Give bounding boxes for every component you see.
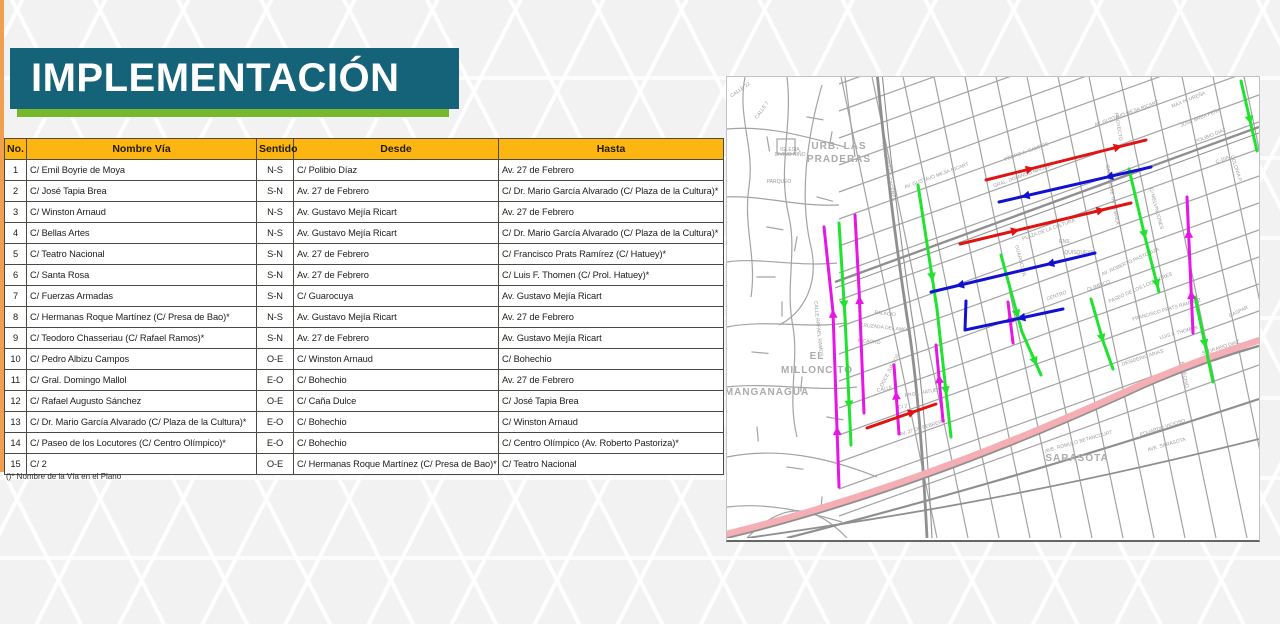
street-label: CALLE RAFAEL RAMOS [812,301,824,358]
table-cell: S-N [257,181,294,202]
route-arrow-icon [941,386,951,395]
street-label: AV. 27 DE FEBRERO [899,418,947,438]
table-cell: Av. 27 de Febrero [294,244,499,265]
table-cell: Av. Gustavo Mejía Ricart [294,307,499,328]
table-cell: Av. Gustavo Mejía Ricart [499,286,724,307]
table-row: 1C/ Emil Boyrie de MoyaN-SC/ Polibio Día… [5,160,724,181]
table-cell: Av. Gustavo Mejía Ricart [294,202,499,223]
route-line-rafael-ramos-magenta [824,227,839,487]
table-cell: E-O [257,433,294,454]
street-label: CALLE 7 [754,100,771,120]
table-cell: C/ Santa Rosa [27,265,257,286]
street-label: C/ 2 [898,403,908,411]
table-cell: N-S [257,223,294,244]
table-cell: 10 [5,349,27,370]
street-label: OLIMPICO [1086,279,1111,293]
table-cell: S-N [257,244,294,265]
route-line-santa-rosa-magenta [1187,197,1193,333]
street-label: PALACIO [874,310,896,318]
area-label: MANGANAGUA [727,387,809,398]
map-svg: CALLE 22CALLE 7IGLESIADIVINO NIÑOPARQUEO… [727,77,1259,538]
table-cell: Av. 27 de Febrero [499,307,724,328]
street-label: POLIBIO DIAZ [1194,127,1227,145]
route-arrow-icon [840,300,849,309]
table-cell: 4 [5,223,27,244]
table-cell: C/ Hermanas Roque Martínez (C/ Presa de … [27,307,257,328]
table-row: 12C/ Rafael Augusto SánchezO-EC/ Caña Du… [5,391,724,412]
table-row: 10C/ Pedro Albizu CamposO-EC/ Winston Ar… [5,349,724,370]
area-label: MILLONCITO [781,365,853,376]
street-label: PARQUEO [767,179,792,185]
table-header: No.Nombre VíaSentidoDesdeHasta [5,139,724,160]
table-cell: C/ Teatro Nacional [499,454,724,475]
route-arrow-icon [833,426,842,435]
area-label: SARASOTA [1045,453,1108,464]
table-row: 6C/ Santa RosaS-NAv. 27 de FebreroC/ Lui… [5,265,724,286]
route-line-tapia-brea-green [1129,169,1159,292]
table-cell: C/ Dr. Mario García Alvarado (C/ Plaza d… [27,412,257,433]
table-cell: C/ Rafael Augusto Sánchez [27,391,257,412]
table-cell: 7 [5,286,27,307]
route-arrow-icon [1187,290,1196,299]
route-arrow-icon [845,400,854,409]
street-label: CRUZADA DEL AMOR [859,322,911,333]
route-arrow-icon [891,391,900,400]
table-cell: C/ Caña Dulce [294,391,499,412]
page-title: IMPLEMENTACIÓN [31,56,399,101]
title-band: IMPLEMENTACIÓN [10,48,459,109]
street-label: DIVINO NIÑO [774,151,805,158]
street-label: ENS. [1059,239,1071,245]
street-label: GASPAR [1228,305,1249,320]
table-cell: O-E [257,349,294,370]
table-cell: C/ Dr. Mario García Alvarado (C/ Plaza d… [499,181,724,202]
table-header-cell: Nombre Vía [27,139,257,160]
route-line-right-green [1091,299,1113,369]
table-cell: C/ Winston Arnaud [27,202,257,223]
table-row: 2C/ José Tapia BreaS-NAv. 27 de FebreroC… [5,181,724,202]
table-cell: 6 [5,265,27,286]
table-footnote: ()* Nombre de la Vía en el Plano [6,472,121,481]
table-cell: C/ Winston Arnaud [499,412,724,433]
table-header-cell: Desde [294,139,499,160]
table-cell: C/ Gral. Domingo Mallol [27,370,257,391]
table-cell: C/ Teatro Nacional [27,244,257,265]
table-cell: Av. 27 de Febrero [294,265,499,286]
table-cell: C/ Bohechio [499,349,724,370]
table-cell: 9 [5,328,27,349]
route-arrow-icon [855,295,864,304]
street-label: PROL. HATUEY [904,387,941,399]
table-row: 8C/ Hermanas Roque Martínez (C/ Presa de… [5,307,724,328]
route-line-bellas-artes-green [918,185,951,437]
table-cell: Av. Gustavo Mejía Ricart [499,328,724,349]
table-cell: C/ Hermanas Roque Martínez (C/ Presa de … [294,454,499,475]
table-header-cell: Sentido [257,139,294,160]
table-row: 4C/ Bellas ArtesN-SAv. Gustavo Mejía Ric… [5,223,724,244]
slide: { "slide": { "title": "IMPLEMENTACIÓN", … [0,0,1280,624]
table-cell: C/ Bohechio [294,433,499,454]
table-row: 13C/ Dr. Mario García Alvarado (C/ Plaza… [5,412,724,433]
table-cell: 2 [5,181,27,202]
route-arrow-icon [934,374,944,383]
table-row: 7C/ Fuerzas ArmadasS-NC/ GuarocuyaAv. Gu… [5,286,724,307]
table-row: 9C/ Teodoro Chasseriau (C/ Rafael Ramos)… [5,328,724,349]
table-cell: S-N [257,328,294,349]
street-label: DOCE JUEGOS [879,352,902,388]
table-cell: Av. 27 de Febrero [499,160,724,181]
street-label: COLONIA P. [1229,155,1243,183]
table-cell: E-O [257,412,294,433]
table-cell: C/ Polibio Díaz [294,160,499,181]
table-cell: C/ José Tapia Brea [499,391,724,412]
street-label: AV. GUSTAVO MEJIA RICART [1094,100,1160,129]
table-row: 11C/ Gral. Domingo MallolE-OC/ BohechioA… [5,370,724,391]
table-cell: 13 [5,412,27,433]
table-cell: S-N [257,265,294,286]
table-row: 5C/ Teatro NacionalS-NAv. 27 de FebreroC… [5,244,724,265]
implementation-table: No.Nombre VíaSentidoDesdeHasta 1C/ Emil … [4,138,724,475]
table-cell: 11 [5,370,27,391]
table-cell: 5 [5,244,27,265]
table-row: 3C/ Winston ArnaudN-SAv. Gustavo Mejía R… [5,202,724,223]
table-cell: 14 [5,433,27,454]
table-cell: 3 [5,202,27,223]
table-cell: C/ Emil Boyrie de Moya [27,160,257,181]
street-map: CALLE 22CALLE 7IGLESIADIVINO NIÑOPARQUEO… [726,76,1260,542]
table-cell: S-N [257,286,294,307]
table-cell: C/ Dr. Mario García Alvarado (C/ Plaza d… [499,223,724,244]
route-arrow-icon [1184,229,1193,238]
street-label: JOSE BREA PEÑA [1179,106,1222,129]
table-cell: C/ Teodoro Chasseriau (C/ Rafael Ramos)* [27,328,257,349]
table-header-cell: Hasta [499,139,724,160]
table-cell: Av. Gustavo Mejía Ricart [294,223,499,244]
table-cell: O-E [257,454,294,475]
table-body: 1C/ Emil Boyrie de MoyaN-SC/ Polibio Día… [5,160,724,475]
table-cell: N-S [257,202,294,223]
street-label: CALLE 22 [729,81,751,99]
table-cell: Av. 27 de Febrero [294,181,499,202]
table-row: 14C/ Paseo de los Locutores (C/ Centro O… [5,433,724,454]
table-cell: C/ Fuerzas Armadas [27,286,257,307]
table-cell: C/ Paseo de los Locutores (C/ Centro Olí… [27,433,257,454]
route-line-left-green [839,223,851,445]
table-cell: C/ Francisco Prats Ramírez (C/ Hatuey)* [499,244,724,265]
table-cell: C/ Winston Arnaud [294,349,499,370]
table-header-cell: No. [5,139,27,160]
route-arrow-icon [829,309,838,318]
table-cell: C/ Pedro Albizu Campos [27,349,257,370]
table-cell: 12 [5,391,27,412]
table-cell: 1 [5,160,27,181]
table-cell: C/ Guarocuya [294,286,499,307]
street-label: C-10A [1215,154,1231,165]
table-cell: C/ Luis F. Thomen (C/ Prol. Hatuey)* [499,265,724,286]
table-cell: N-S [257,307,294,328]
table-cell: 8 [5,307,27,328]
area-label: URB. LAS [811,141,866,152]
table-cell: C/ Centro Olímpico (Av. Roberto Pastoriz… [499,433,724,454]
table-cell: Av. 27 de Febrero [294,328,499,349]
street-label: C/ MELVIN JONES [1148,187,1165,230]
table-cell: C/ José Tapia Brea [27,181,257,202]
table-cell: C/ Bohechio [294,370,499,391]
area-label: EL [810,351,825,362]
table-cell: N-S [257,160,294,181]
table-cell: E-O [257,370,294,391]
table-cell: O-E [257,391,294,412]
route-line-hermanas-roque-magenta [855,215,864,413]
table-header-row: No.Nombre VíaSentidoDesdeHasta [5,139,724,160]
route-line-red-mid [960,203,1131,244]
table-cell: Av. 27 de Febrero [499,370,724,391]
table-cell: Av. 27 de Febrero [499,202,724,223]
street-label: EDUARDO VICIOSO [1139,418,1186,438]
table-cell: C/ Bohechio [294,412,499,433]
table-cell: C/ Bellas Artes [27,223,257,244]
area-label: PRADERAS [807,154,871,165]
